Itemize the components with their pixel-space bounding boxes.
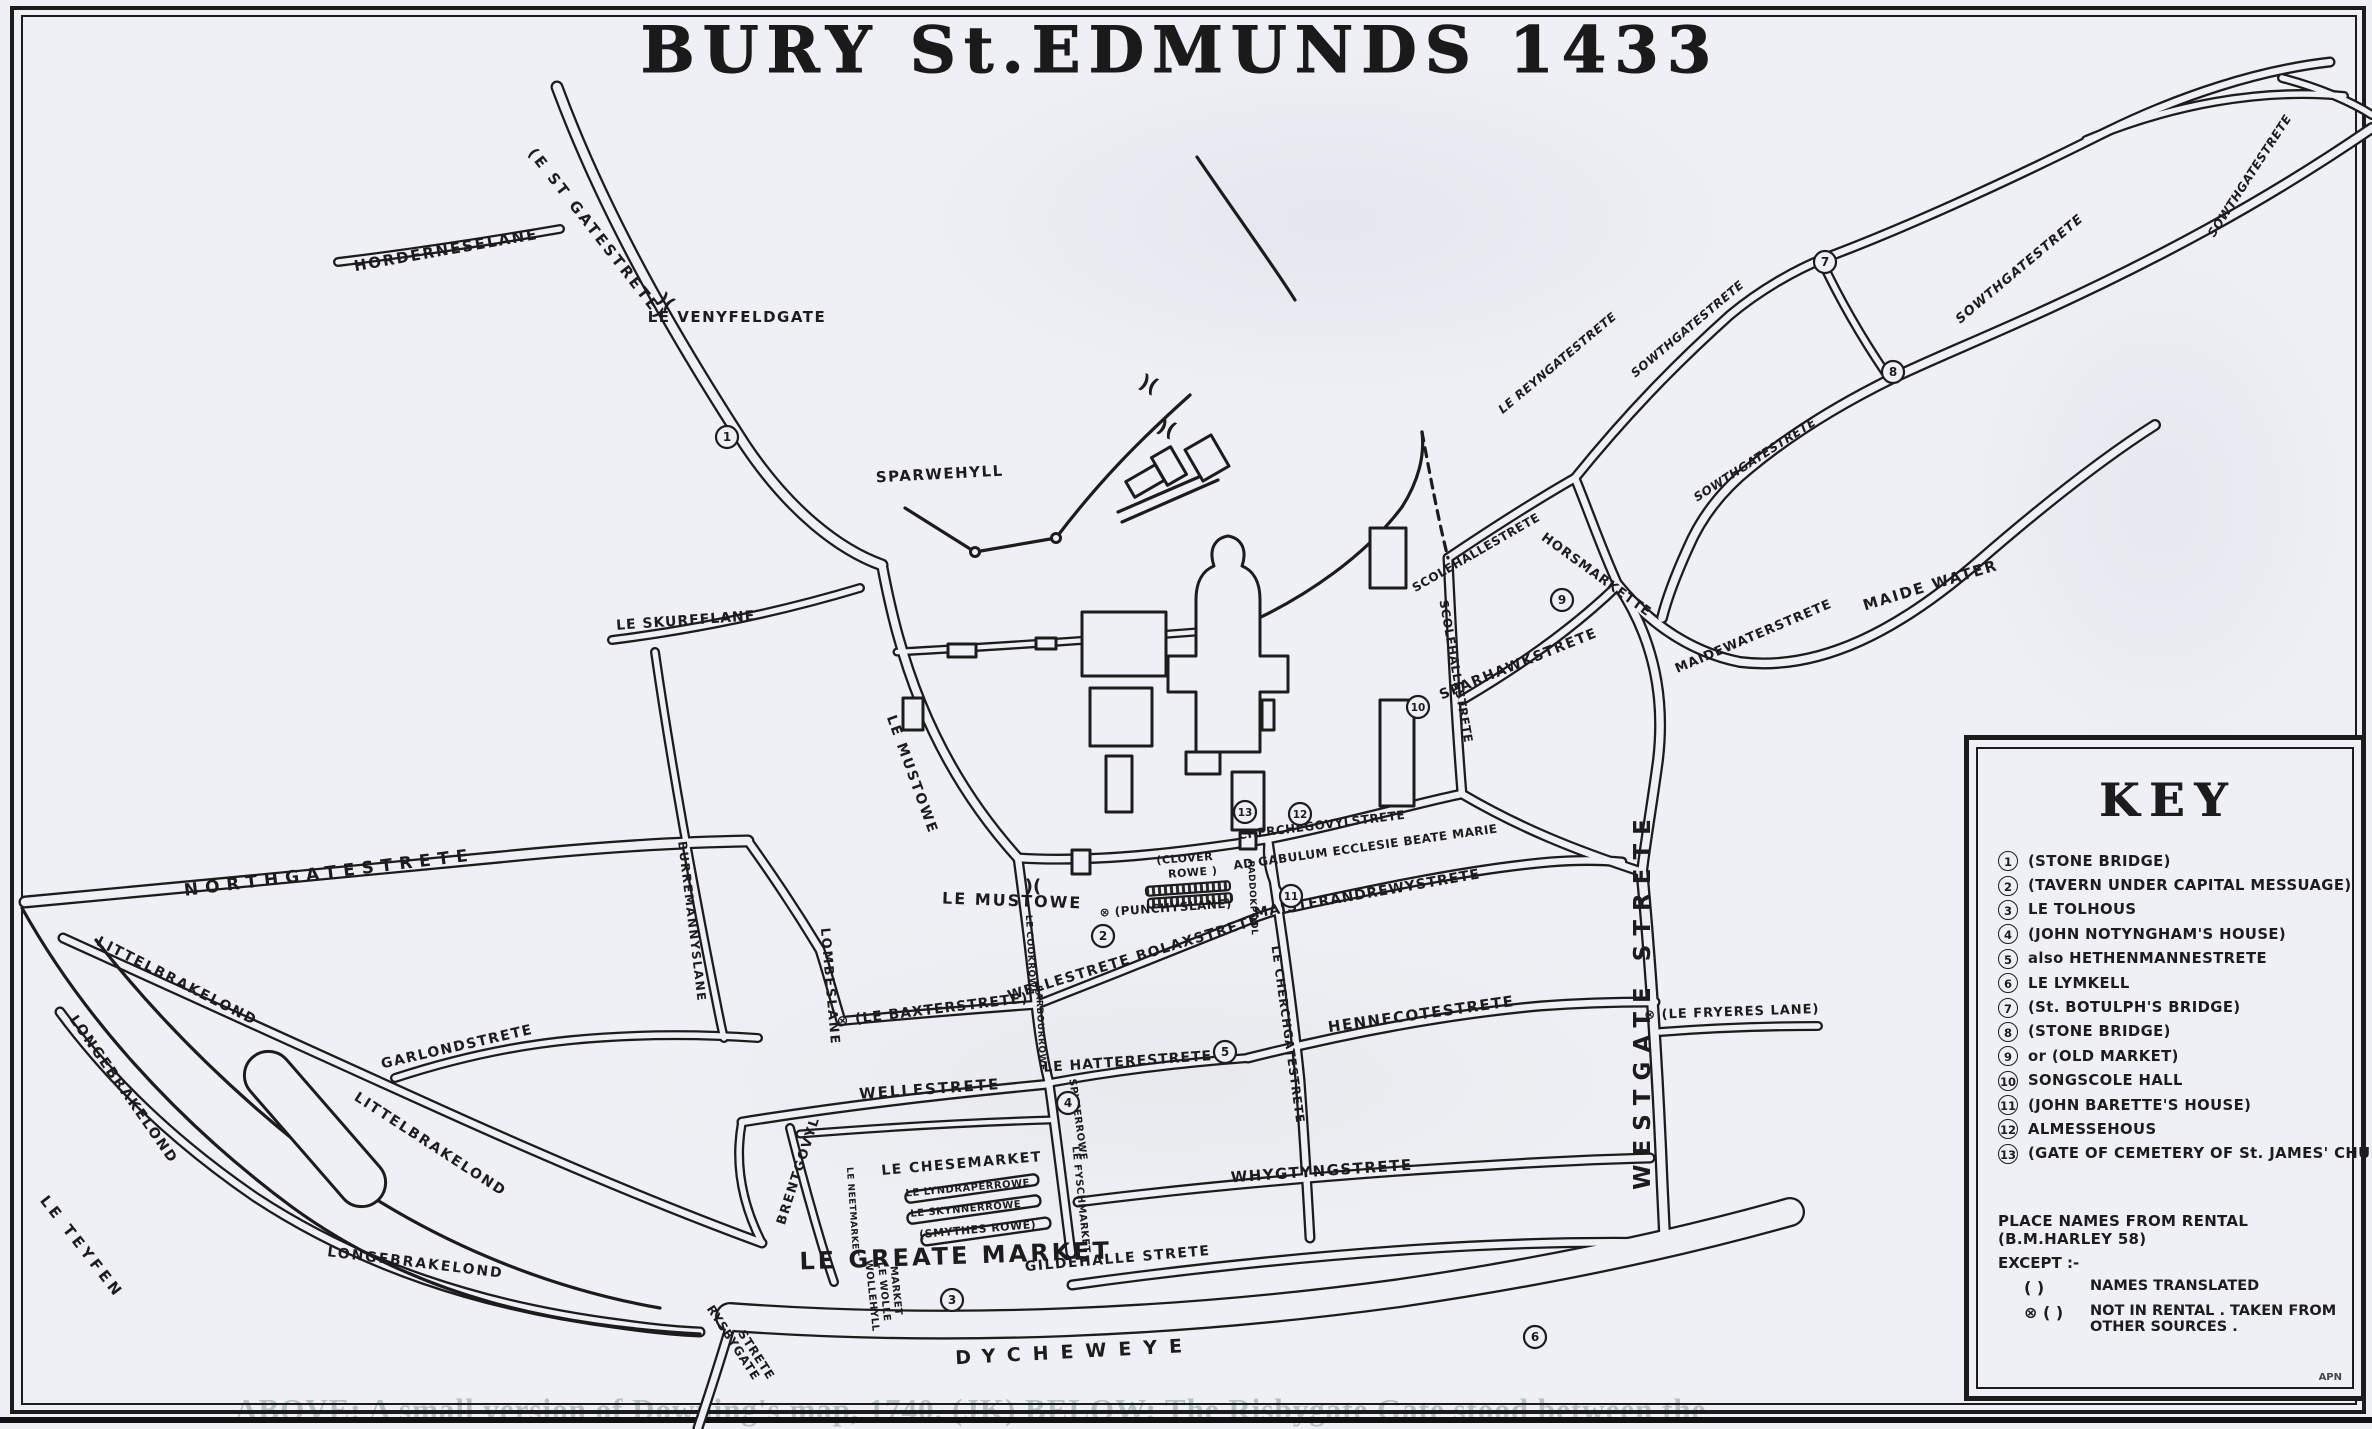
gate-icon: )( xyxy=(1154,413,1181,442)
key-entry-3: 3LE TOLHOUS xyxy=(1998,898,2338,922)
map-marker-4: 4 xyxy=(1057,1092,1079,1114)
street-label-littelbrakelond: LITTELBRAKELOND xyxy=(94,934,260,1029)
key-entry-number: 4 xyxy=(1998,924,2018,944)
street-label-westgate-strete: WESTGATE STRETE xyxy=(1630,810,1656,1190)
key-entry-label: LE TOLHOUS xyxy=(2028,901,2136,918)
cloister-range xyxy=(1090,688,1152,746)
key-entry-6: 6LE LYMKELL xyxy=(1998,971,2338,995)
key-entry-4: 4(JOHN NOTYNGHAM'S HOUSE) xyxy=(1998,922,2338,946)
road-surface xyxy=(2086,94,2344,140)
street-label-le-venyfeldgate: LE VENYFELDGATE xyxy=(648,308,827,326)
songscole-hall xyxy=(1380,700,1414,806)
gate-icon: )( xyxy=(1025,876,1041,897)
key-entry-number: 13 xyxy=(1998,1144,2018,1164)
map-marker-8: 8 xyxy=(1882,361,1904,383)
key-title: KEY xyxy=(1998,773,2338,827)
svg-text:11: 11 xyxy=(1284,891,1299,903)
road xyxy=(557,87,882,565)
street-label-dycheweye: DYCHEWEYE xyxy=(955,1335,1195,1369)
road-surface xyxy=(748,841,820,950)
svg-text:13: 13 xyxy=(1238,807,1253,819)
road xyxy=(1662,128,2372,618)
key-entry-number: 7 xyxy=(1998,998,2018,1018)
svg-text:5: 5 xyxy=(1221,1045,1229,1059)
map-marker-2: 2 xyxy=(1092,925,1114,947)
street-label-rowe: ROWE ) xyxy=(1168,864,1218,880)
street-label-scolehallestrete: SCOLEHALLESTRETE xyxy=(1410,510,1543,595)
street-label-le-lyndraperrowe: LE LYNDRAPERROWE xyxy=(905,1178,1030,1200)
map-marker-7: 7 xyxy=(1814,251,1836,273)
key-entry-7: 7(St. BOTULPH'S BRIDGE) xyxy=(1998,995,2338,1019)
street-label-wellestrete-bolaxstrete: WELLESTRETE BOLAXSTRETE xyxy=(1006,912,1262,1004)
key-entry-number: 11 xyxy=(1998,1095,2018,1115)
street-label-sowthgatestrete: SOWTHGATESTRETE xyxy=(2205,112,2295,240)
norman-gate xyxy=(1072,850,1090,874)
key-entry-10: 10SONGSCOLE HALL xyxy=(1998,1069,2338,1093)
key-entry-11: 11(JOHN BARETTE'S HOUSE) xyxy=(1998,1093,2338,1117)
svg-text:9: 9 xyxy=(1558,593,1566,607)
street-label-longebrakelond: LONGEBRAKELOND xyxy=(66,1012,181,1167)
key-entry-label: (GATE OF CEMETERY OF St. JAMES' CHURCH) xyxy=(2028,1145,2372,1162)
map-marker-5: 5 xyxy=(1214,1041,1236,1063)
building xyxy=(1370,528,1406,588)
key-entry-9: 9or (OLD MARKET) xyxy=(1998,1044,2338,1068)
key-entry-8: 8(STONE BRIDGE) xyxy=(1998,1020,2338,1044)
key-entry-label: (St. BOTULPH'S BRIDGE) xyxy=(2028,999,2241,1016)
gate-icon: )( xyxy=(1136,369,1163,398)
cloister-range xyxy=(1106,756,1132,812)
svg-text:10: 10 xyxy=(1411,702,1426,714)
map-marker-10: 10 xyxy=(1407,696,1429,718)
road-surface xyxy=(557,87,882,565)
street-label-sowthgatestrete: SOWTHGATESTRETE xyxy=(1691,415,1819,505)
street-label-le-teyfen: LE TEYFEN xyxy=(36,1192,127,1302)
brakelond-island xyxy=(235,1042,396,1217)
key-entry-label: LE LYMKELL xyxy=(2028,975,2130,992)
map-marker-13: 13 xyxy=(1234,801,1256,823)
key-entries: 1(STONE BRIDGE)2(TAVERN UNDER CAPITAL ME… xyxy=(1998,849,2338,1166)
building xyxy=(1262,700,1274,730)
svg-text:2: 2 xyxy=(1099,929,1107,943)
key-entry-label: (JOHN BARETTE'S HOUSE) xyxy=(2028,1097,2251,1114)
key-legend-symbol: ( ) xyxy=(2024,1278,2080,1297)
key-legend-label: NAMES TRANSLATED xyxy=(2090,1278,2259,1297)
street-label-horderneselane: HORDERNESELANE xyxy=(353,225,540,275)
key-entry-5: 5also HETHENMANNESTRETE xyxy=(1998,947,2338,971)
key-legend-row: ⊗ ( )NOT IN RENTAL . TAKEN FROM OTHER SO… xyxy=(2024,1303,2338,1335)
map-marker-3: 3 xyxy=(941,1289,963,1311)
map-marker-12: 12 xyxy=(1289,803,1311,825)
wall-dot xyxy=(1052,534,1061,543)
svg-text:8: 8 xyxy=(1889,365,1897,379)
road xyxy=(1575,62,2330,478)
road-surface xyxy=(1618,425,2155,663)
abbey-gate xyxy=(948,644,976,657)
key-entry-label: (STONE BRIDGE) xyxy=(2028,1023,2171,1040)
road-surface xyxy=(1575,62,2330,478)
key-legend-row: ( )NAMES TRANSLATED xyxy=(2024,1278,2338,1297)
key-entry-label: or (OLD MARKET) xyxy=(2028,1048,2179,1065)
key-entry-number: 1 xyxy=(1998,851,2018,871)
map-marker-9: 9 xyxy=(1551,589,1573,611)
key-entry-number: 6 xyxy=(1998,973,2018,993)
svg-text:3: 3 xyxy=(948,1293,956,1307)
key-entry-number: 12 xyxy=(1998,1119,2018,1139)
svg-text:1: 1 xyxy=(723,430,731,444)
abbey-gate xyxy=(1036,638,1056,649)
key-entry-label: SONGSCOLE HALL xyxy=(2028,1072,2183,1089)
street-label-sowthgatestrete: SOWTHGATESTRETE xyxy=(1953,212,2086,327)
key-entry-12: 12ALMESSEHOUS xyxy=(1998,1117,2338,1141)
key-entry-number: 5 xyxy=(1998,949,2018,969)
street-label-le-fryeres-lane: ⊗ (LE FRYERES LANE) xyxy=(1644,1002,1820,1023)
abbey-west-tower xyxy=(1186,752,1220,774)
street-label-le-mustowe: LE MUSTOWE xyxy=(942,889,1083,913)
cloister-range xyxy=(1082,612,1166,676)
key-signature: APN xyxy=(2319,1372,2342,1383)
key-entry-number: 10 xyxy=(1998,1071,2018,1091)
street-label-le-chesemarket: LE CHESEMARKET xyxy=(881,1149,1043,1179)
key-entry-number: 3 xyxy=(1998,900,2018,920)
key-panel-inner: KEY 1(STONE BRIDGE)2(TAVERN UNDER CAPITA… xyxy=(1976,747,2354,1389)
key-source-note: PLACE NAMES FROM RENTAL (B.M.HARLEY 58) xyxy=(1998,1212,2338,1248)
street-label-northgatestrete: NORTHGATESTRETE xyxy=(183,845,476,901)
building xyxy=(903,698,923,730)
key-entry-13: 13(GATE OF CEMETERY OF St. JAMES' CHURCH… xyxy=(1998,1142,2338,1166)
key-legend: ( )NAMES TRANSLATED⊗ ( )NOT IN RENTAL . … xyxy=(1998,1278,2338,1335)
key-entry-label: also HETHENMANNESTRETE xyxy=(2028,950,2267,967)
key-entry-label: (TAVERN UNDER CAPITAL MESSUAGE) xyxy=(2028,877,2352,894)
key-footnote: PLACE NAMES FROM RENTAL (B.M.HARLEY 58) … xyxy=(1998,1212,2338,1335)
key-entry-2: 2(TAVERN UNDER CAPITAL MESSUAGE) xyxy=(1998,873,2338,897)
key-entry-1: 1(STONE BRIDGE) xyxy=(1998,849,2338,873)
key-entry-label: (STONE BRIDGE) xyxy=(2028,853,2171,870)
key-panel: KEY 1(STONE BRIDGE)2(TAVERN UNDER CAPITA… xyxy=(1964,735,2366,1401)
key-legend-label: NOT IN RENTAL . TAKEN FROM OTHER SOURCES… xyxy=(2090,1303,2338,1335)
street-label-le-reyngatestrete: LE REYNGATESTRETE xyxy=(1496,309,1620,416)
key-entry-number: 8 xyxy=(1998,1022,2018,1042)
wall-dot xyxy=(971,548,980,557)
key-entry-label: (JOHN NOTYNGHAM'S HOUSE) xyxy=(2028,926,2286,943)
map-marker-6: 6 xyxy=(1524,1326,1546,1348)
svg-text:6: 6 xyxy=(1531,1330,1539,1344)
street-label-sowthgatestrete: SOWTHGATESTRETE xyxy=(1628,277,1747,380)
abbots-palace xyxy=(1185,435,1229,481)
road-surface xyxy=(1822,262,1885,372)
street-label-sparwehyll: SPARWEHYLL xyxy=(875,462,1004,487)
svg-text:12: 12 xyxy=(1293,809,1308,821)
key-entry-number: 2 xyxy=(1998,876,2018,896)
key-except-note: EXCEPT :- xyxy=(1998,1254,2338,1272)
map-marker-1: 1 xyxy=(716,426,738,448)
svg-text:7: 7 xyxy=(1821,255,1829,269)
map-page: ABOVE: A small version of Downing's map,… xyxy=(0,0,2372,1429)
key-entry-number: 9 xyxy=(1998,1046,2018,1066)
map-marker-11: 11 xyxy=(1280,885,1302,907)
map-title: BURY St.EDMUNDS 1433 xyxy=(641,13,1720,88)
svg-text:4: 4 xyxy=(1064,1096,1072,1110)
street-label-le-neetmarket: LE NEETMARKET xyxy=(844,1167,860,1257)
key-entry-label: ALMESSEHOUS xyxy=(2028,1121,2157,1138)
key-legend-symbol: ⊗ ( ) xyxy=(2024,1303,2080,1335)
